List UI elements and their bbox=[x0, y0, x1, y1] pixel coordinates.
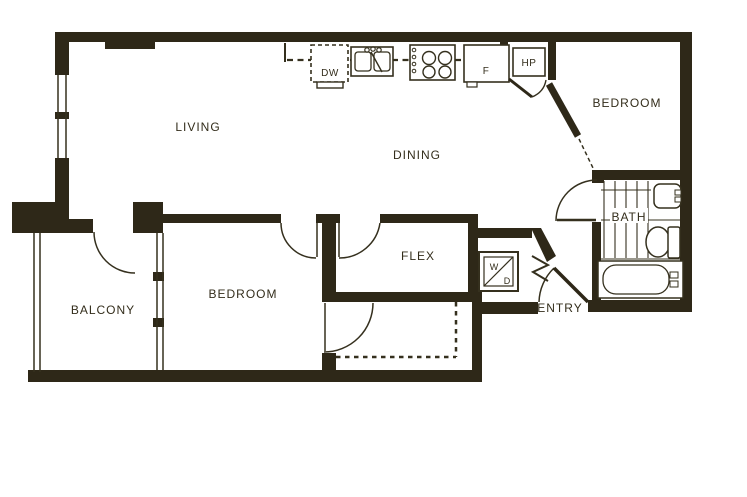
washer-dryer bbox=[479, 252, 518, 291]
bath-sink-icon bbox=[654, 184, 681, 208]
bedroom-closet-wall bbox=[322, 353, 336, 372]
bath-door-arc bbox=[556, 180, 597, 221]
floor-plan: LIVING DINING BEDROOM BEDROOM BALCONY FL… bbox=[0, 0, 747, 497]
hp-right-wall bbox=[548, 42, 556, 80]
bedroom-door-arc bbox=[281, 223, 316, 258]
bath-sink-faucet bbox=[675, 190, 681, 195]
left-wall-lower bbox=[55, 158, 69, 204]
bath-door-post bbox=[592, 170, 604, 183]
heat-pump-closet bbox=[509, 48, 546, 97]
bottom-wall bbox=[28, 370, 482, 382]
tub-faucet bbox=[670, 272, 678, 278]
bath-sink-faucet bbox=[675, 197, 681, 202]
sliding-door-track bbox=[579, 139, 593, 168]
top-wall bbox=[55, 32, 692, 42]
left-wall-upper bbox=[55, 32, 69, 75]
dishwasher-label: DW bbox=[321, 68, 339, 79]
step-wall bbox=[472, 302, 482, 376]
sliding-door bbox=[549, 84, 578, 136]
heat-pump-label: HP bbox=[522, 58, 537, 69]
wd-top-wall bbox=[478, 228, 532, 238]
wd-left-wall bbox=[468, 214, 478, 302]
bedroom-flex-wall bbox=[322, 214, 336, 302]
closet-dashed-outline bbox=[336, 302, 456, 357]
floor-plan-drawing: LIVING DINING BEDROOM BEDROOM BALCONY FL… bbox=[0, 0, 747, 497]
balcony-pier-3 bbox=[62, 219, 93, 233]
bathroom bbox=[598, 181, 683, 298]
toilet-tank-icon bbox=[668, 227, 680, 258]
dryer-label: D bbox=[504, 276, 511, 286]
fridge-handle bbox=[467, 82, 477, 87]
hp-door-arc bbox=[532, 80, 546, 97]
entry-door-arc bbox=[539, 268, 554, 302]
fridge-label: F bbox=[483, 66, 490, 77]
walls bbox=[12, 32, 692, 382]
hp-door-leaf bbox=[509, 79, 532, 97]
balcony-door-arc bbox=[94, 232, 135, 273]
window-mullion-left bbox=[55, 112, 69, 119]
washer-label: W bbox=[490, 262, 499, 272]
dishwasher-handle bbox=[317, 82, 343, 88]
flex-bottom-wall bbox=[322, 292, 482, 302]
balcony-pier bbox=[12, 202, 62, 233]
living-label: LIVING bbox=[175, 120, 220, 134]
flex-door-arc bbox=[339, 223, 380, 258]
entry-door-leaf bbox=[554, 268, 588, 302]
dining-label: DINING bbox=[393, 148, 441, 162]
bedroom-upper-label: BEDROOM bbox=[592, 96, 661, 110]
kitchen bbox=[285, 43, 509, 88]
bath-bottom-wall bbox=[588, 300, 692, 312]
balcony-label: BALCONY bbox=[71, 303, 135, 317]
toilet-bowl-icon bbox=[646, 227, 670, 257]
tub-faucet bbox=[670, 281, 678, 287]
bedroom-lower-label: BEDROOM bbox=[208, 287, 277, 301]
bath-top-wall bbox=[592, 170, 692, 180]
flex-label: FLEX bbox=[401, 249, 435, 263]
top-wall-notch bbox=[105, 42, 155, 49]
flex-top-wall bbox=[380, 214, 468, 223]
bath-label: BATH bbox=[611, 210, 646, 224]
entry-label: ENTRY bbox=[537, 301, 582, 315]
range-icon bbox=[410, 45, 455, 80]
doors bbox=[94, 180, 597, 352]
living-bedroom-wall bbox=[155, 214, 281, 223]
closet-door-arc bbox=[324, 303, 373, 352]
